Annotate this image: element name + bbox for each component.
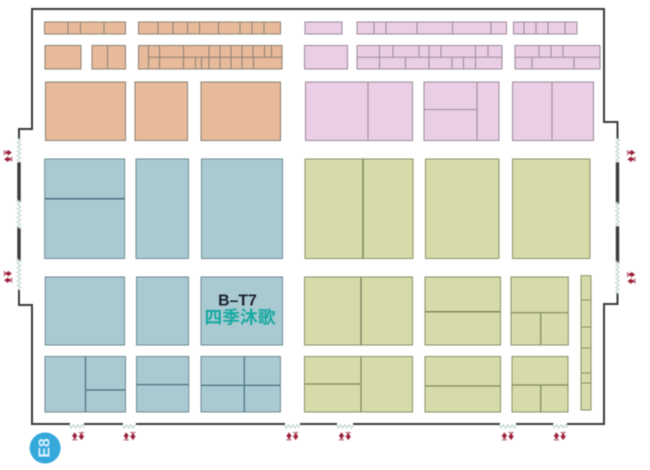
svg-text:E8: E8	[37, 438, 54, 458]
svg-text:B–T7: B–T7	[218, 293, 257, 310]
